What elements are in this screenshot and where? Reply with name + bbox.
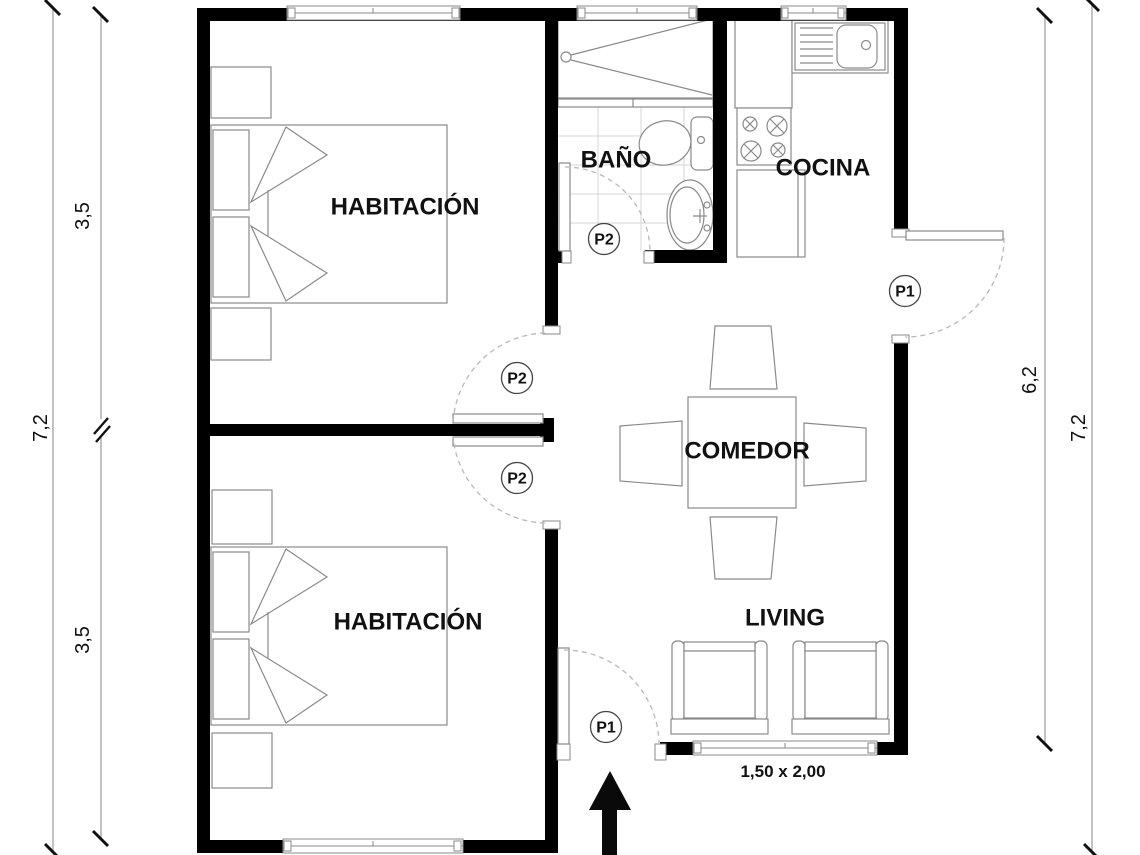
nightstand [212,490,272,544]
label-bedroom-top: HABITACIÓN [331,192,480,220]
wall-right-lower [894,337,908,755]
door-leaf-entry [558,648,569,744]
label-bedroom-bottom: HABITACIÓN [334,607,483,635]
wall-bedroom-top-right [545,21,558,333]
shower-curb [558,99,713,107]
washbasin [667,180,713,250]
svg-text:P1: P1 [596,720,616,737]
dining-chair [710,517,777,579]
pillow [213,639,249,719]
floor-plan-page: 7,2 3,5 3,5 6,2 7,2 HABITACIÓN HABITACIÓ… [0,0,1140,855]
armchair [792,641,889,734]
nightstand [211,308,271,360]
dining-chair [710,326,777,389]
kitchen-counter [735,20,792,108]
window-bathroom [577,6,697,20]
floor-plan-drawing: 7,2 3,5 3,5 6,2 7,2 HABITACIÓN HABITACIÓ… [0,0,1140,855]
wall-bedroom-bottom-right [545,527,558,853]
window-kitchen [781,6,846,20]
dim-left-overall: 7,2 [30,414,52,442]
pillow [213,552,249,632]
shower-tray [558,17,713,98]
wall-bathroom-right [713,21,727,263]
dining-chair [804,423,866,486]
window-living [693,741,877,755]
pillow [213,217,249,297]
svg-text:P1: P1 [895,284,915,301]
fridge [737,170,805,257]
door-tag-p2-bedroom-bottom: P2 [502,463,533,494]
door-tag-p2-bedroom-top: P2 [502,363,533,394]
wall-bottom-living-right [877,742,908,755]
label-bathroom: BAÑO [581,145,652,173]
armchair [671,641,768,734]
wall-center [197,424,550,436]
door-leaf-bedroom-top [453,414,543,423]
window-bedroom-top [287,6,460,20]
label-living: LIVING [745,604,825,631]
dim-right-living-depth: 6,2 [1019,366,1041,394]
dining-chair [620,421,682,486]
dim-left-bedroom-top: 3,5 [72,202,94,230]
sink-bowl [837,25,877,68]
wall-right-upper [894,8,908,237]
svg-text:P2: P2 [507,471,527,488]
kitchen-fixtures [735,20,888,257]
door-tag-p2-bathroom: P2 [589,224,620,255]
window-bedroom-bottom [283,839,463,853]
svg-text:P2: P2 [507,371,527,388]
svg-text:P2: P2 [594,232,614,249]
dim-right-overall: 7,2 [1068,414,1090,442]
door-leaf-bathroom [559,163,570,251]
pillow [213,130,249,210]
door-tag-p1-side: P1 [890,276,921,307]
label-kitchen: COCINA [776,154,871,181]
door-leaf-bedroom-bottom [453,437,543,446]
bedroom-bottom-furniture [211,490,447,788]
label-living-window-size: 1,50 x 2,00 [740,762,825,781]
label-dining: COMEDOR [684,437,809,464]
dim-left-bedroom-bottom: 3,5 [72,626,94,654]
nightstand [211,67,271,118]
door-tag-p1-entry: P1 [591,712,622,743]
living-furniture [671,641,889,734]
door-leaf-side [906,231,1003,240]
nightstand [212,733,272,788]
entry-arrow [589,771,631,855]
bathroom-fixtures [558,17,713,250]
